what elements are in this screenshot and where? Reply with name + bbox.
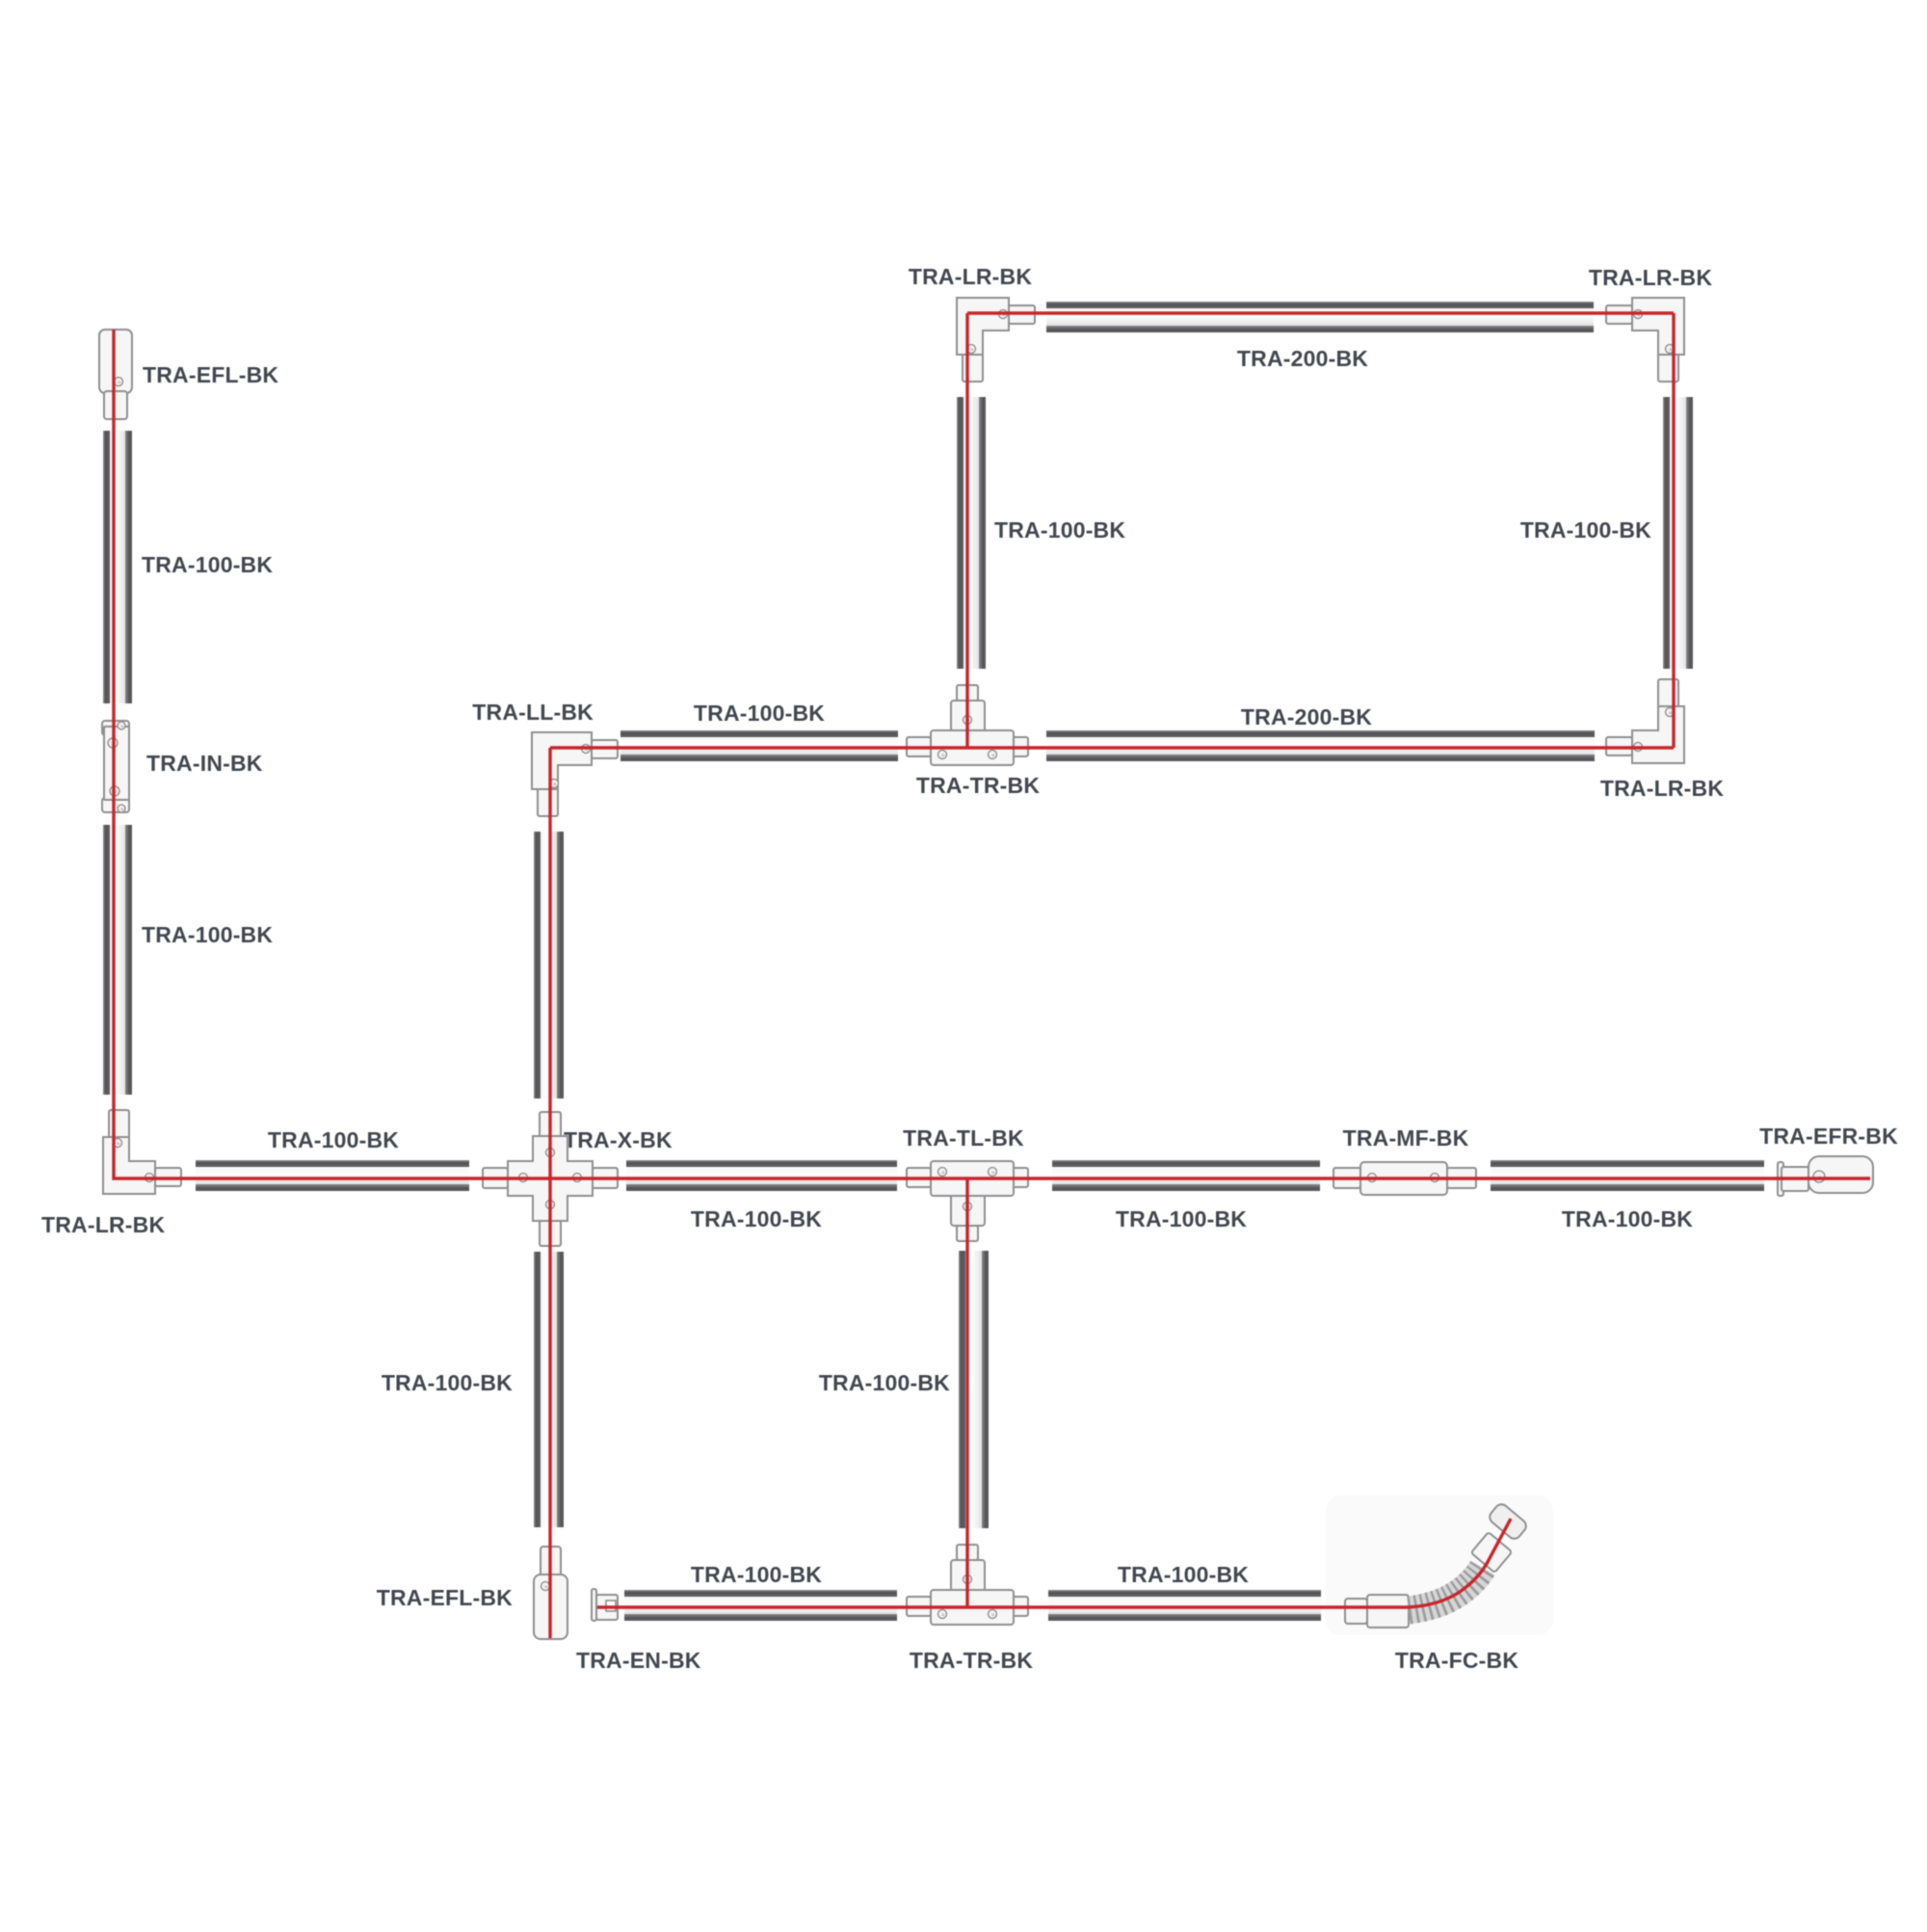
svg-text:TRA-EFL-BK: TRA-EFL-BK [143, 362, 278, 387]
svg-text:TRA-100-BK: TRA-100-BK [1520, 517, 1651, 543]
svg-text:TRA-TR-BK: TRA-TR-BK [916, 773, 1040, 798]
svg-text:TRA-EFL-BK: TRA-EFL-BK [377, 1585, 513, 1610]
svg-text:TRA-100-BK: TRA-100-BK [691, 1206, 822, 1231]
svg-text:TRA-TL-BK: TRA-TL-BK [903, 1125, 1024, 1151]
svg-text:TRA-EFR-BK: TRA-EFR-BK [1759, 1124, 1898, 1149]
svg-text:TRA-100-BK: TRA-100-BK [142, 552, 273, 577]
svg-text:TRA-LR-BK: TRA-LR-BK [41, 1212, 165, 1237]
svg-text:TRA-X-BK: TRA-X-BK [564, 1127, 673, 1152]
svg-text:TRA-LR-BK: TRA-LR-BK [1589, 265, 1712, 290]
svg-text:TRA-100-BK: TRA-100-BK [382, 1370, 513, 1395]
svg-text:TRA-100-BK: TRA-100-BK [691, 1562, 822, 1587]
svg-text:TRA-100-BK: TRA-100-BK [819, 1370, 950, 1395]
svg-text:TRA-100-BK: TRA-100-BK [1562, 1206, 1693, 1231]
svg-text:TRA-200-BK: TRA-200-BK [1241, 704, 1372, 729]
svg-text:TRA-IN-BK: TRA-IN-BK [146, 751, 263, 776]
svg-text:TRA-EN-BK: TRA-EN-BK [576, 1648, 701, 1673]
svg-text:TRA-MF-BK: TRA-MF-BK [1343, 1125, 1469, 1151]
svg-text:TRA-200-BK: TRA-200-BK [1237, 346, 1368, 371]
svg-text:TRA-TR-BK: TRA-TR-BK [910, 1648, 1033, 1673]
svg-text:TRA-100-BK: TRA-100-BK [994, 517, 1125, 543]
svg-text:TRA-FC-BK: TRA-FC-BK [1395, 1648, 1518, 1673]
svg-text:TRA-100-BK: TRA-100-BK [1118, 1562, 1249, 1587]
svg-text:TRA-100-BK: TRA-100-BK [268, 1127, 399, 1152]
svg-text:TRA-100-BK: TRA-100-BK [142, 922, 273, 947]
svg-text:TRA-LR-BK: TRA-LR-BK [1600, 776, 1724, 801]
svg-text:TRA-100-BK: TRA-100-BK [1116, 1206, 1247, 1231]
svg-text:TRA-LR-BK: TRA-LR-BK [909, 264, 1032, 289]
svg-text:TRA-100-BK: TRA-100-BK [694, 701, 825, 726]
svg-text:TRA-LL-BK: TRA-LL-BK [472, 700, 594, 725]
